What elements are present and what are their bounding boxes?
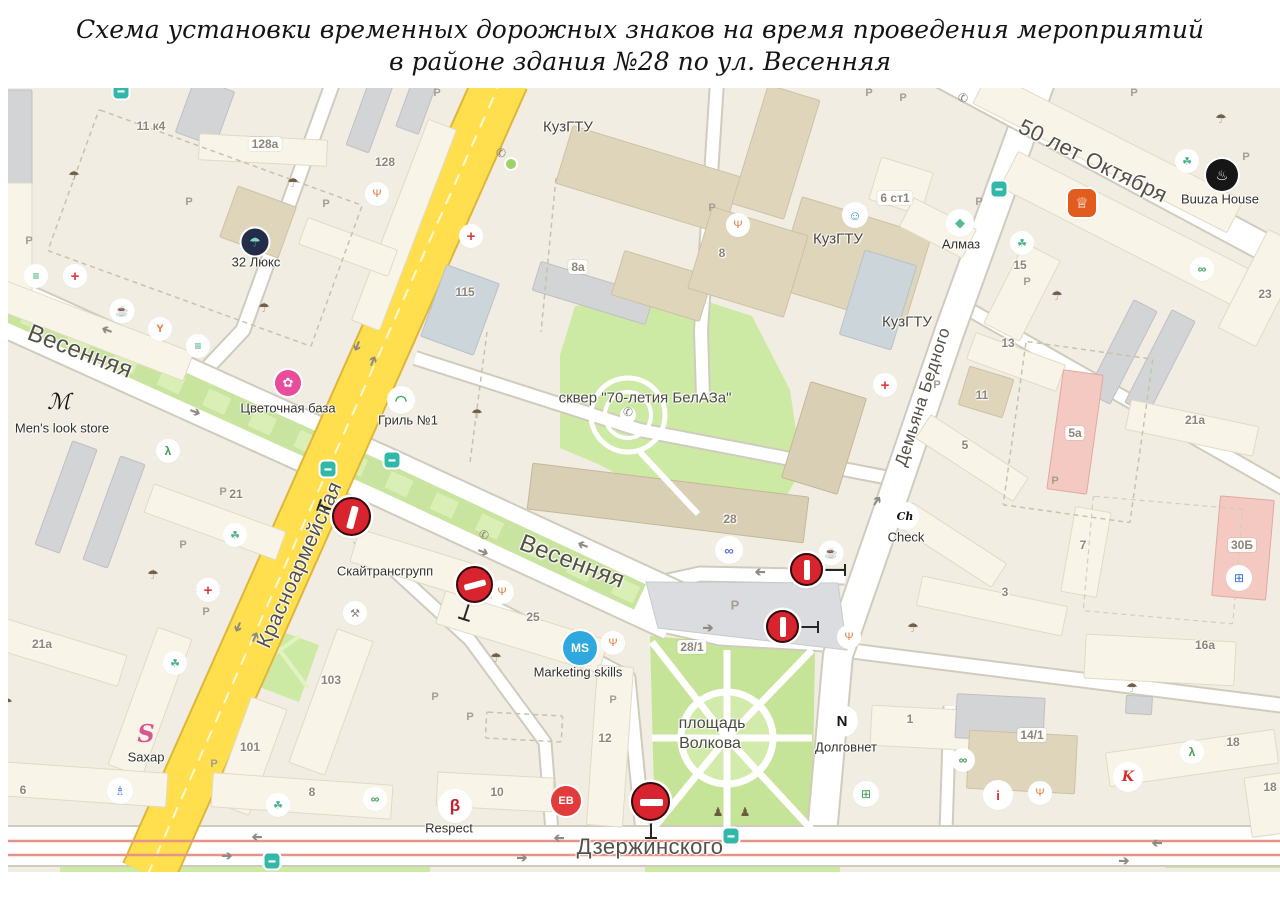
parking-letter: P xyxy=(708,202,715,214)
map-overlay: ВесенняяВесенняяКрасноармейскаяДемьяна Б… xyxy=(0,88,1280,872)
person-icon: λ xyxy=(1182,742,1202,762)
cart-icon: ⊞ xyxy=(855,783,877,805)
restaurant-icon: Ψ xyxy=(492,582,512,602)
place-label: Долговнет xyxy=(815,740,877,755)
sign-mount-tick xyxy=(645,837,657,839)
fitness-icon: ∞ xyxy=(953,750,973,770)
house-number: 21 xyxy=(229,487,242,501)
bus-stop-icon: ▬ xyxy=(992,182,1007,197)
place-label: сквер "70-летия БелАЗа" xyxy=(559,390,732,407)
services-icon: ☘ xyxy=(225,525,245,545)
road-direction-arrow: ➔ xyxy=(755,564,766,580)
parking-letter: P xyxy=(975,196,982,208)
tree-icon: ☂ xyxy=(471,406,483,422)
house-number: 28 xyxy=(723,512,736,526)
vase-icon: ♗ xyxy=(109,780,131,802)
services-icon: ☘ xyxy=(165,653,185,673)
house-number: 103 xyxy=(321,673,341,687)
parking-letter: P xyxy=(322,198,329,210)
tree-icon: ☂ xyxy=(1051,288,1063,304)
services-icon: ☘ xyxy=(268,795,288,815)
place-label: Волкова xyxy=(679,735,741,753)
place-label: Marketing skills xyxy=(534,665,623,680)
house-number: 3 xyxy=(1002,585,1009,599)
house-number: 7 xyxy=(1080,538,1087,552)
om-logo-icon: ℳ xyxy=(46,389,72,415)
fitness-icon: ∞ xyxy=(365,789,385,809)
road-direction-arrow: ➔ xyxy=(229,619,248,635)
house-number: 101 xyxy=(240,740,260,754)
k-logo-icon: K xyxy=(1115,764,1141,790)
street-name-label: Весенняя xyxy=(23,319,136,385)
road-direction-arrow: ➔ xyxy=(703,620,714,636)
house-number: 28/1 xyxy=(677,640,706,654)
flower-shop-icon: ✿ xyxy=(275,370,301,396)
no-entry-bar xyxy=(804,560,810,580)
parking-letter: P xyxy=(1051,475,1058,487)
bus-stop-icon: ▬ xyxy=(114,88,129,99)
road-direction-arrow: ➔ xyxy=(517,850,528,866)
house-number: 5 xyxy=(962,438,969,452)
parking-letter: P xyxy=(1130,88,1137,99)
tree-icon: ☂ xyxy=(1126,680,1138,696)
house-number: 18 xyxy=(1226,735,1239,749)
oval-logo-icon: i xyxy=(985,782,1011,808)
house-number: 12 xyxy=(598,731,611,745)
tree-icon: ☂ xyxy=(490,650,502,666)
lux-logo-icon: ☂ xyxy=(242,229,269,256)
house-number: 10 xyxy=(490,785,503,799)
road-direction-arrow: ➔ xyxy=(348,338,367,354)
scheme-title-line2: в районе здания №28 по ул. Весенняя xyxy=(0,46,1280,78)
house-number: 8 xyxy=(309,785,316,799)
diamond-icon: ◆ xyxy=(948,211,972,235)
restaurant-icon: Ψ xyxy=(728,215,748,235)
dolgovnet-logo-icon: N xyxy=(828,707,856,735)
place-label: Гриль №1 xyxy=(378,413,438,428)
house-number: 8а xyxy=(568,260,587,274)
eb-logo-icon: ЕВ xyxy=(551,786,581,816)
no-entry-sign xyxy=(631,782,671,822)
street-name-label: Демьяна Бедного xyxy=(891,325,955,469)
respect-logo-icon: β xyxy=(440,791,470,821)
house-number: 11 к4 xyxy=(137,119,166,133)
parking-letter: P xyxy=(865,88,872,99)
bus-stop-icon: ▬ xyxy=(321,462,336,477)
grill-logo-icon: ◠ xyxy=(389,388,413,412)
scheme-title-line1: Схема установки временных дорожных знако… xyxy=(0,14,1280,46)
tree-icon: ☂ xyxy=(907,620,919,636)
house-number: 25 xyxy=(526,610,539,624)
ms-logo-icon: MS xyxy=(563,631,597,665)
camera-icon: ✆ xyxy=(621,405,635,419)
parking-letter: P xyxy=(202,606,209,618)
statue-icon: ♟ xyxy=(738,805,752,819)
pharmacy-icon: + xyxy=(875,375,895,395)
road-direction-arrow: ➔ xyxy=(475,543,491,562)
parking-letter: P xyxy=(431,691,438,703)
statue-icon: ♟ xyxy=(711,805,725,819)
no-entry-bar xyxy=(640,799,663,806)
person-icon: λ xyxy=(158,441,178,461)
sign-mount-tick xyxy=(844,564,846,576)
road-direction-arrow: ➔ xyxy=(187,403,203,422)
parking-letter: P xyxy=(1242,151,1249,163)
restaurant-icon: Ψ xyxy=(603,633,623,653)
scheme-title: Схема установки временных дорожных знако… xyxy=(0,14,1280,78)
road-direction-arrow: ➔ xyxy=(252,829,263,845)
sign-mount-tick xyxy=(817,621,819,633)
place-label: 32 Люкс xyxy=(232,255,281,270)
green-dot xyxy=(506,159,516,169)
road-direction-arrow: ➔ xyxy=(1152,835,1163,851)
restaurant-icon: Ψ xyxy=(839,627,859,647)
tree-icon: ☂ xyxy=(258,300,270,316)
pharmacy-icon: + xyxy=(198,580,218,600)
house-number: 21а xyxy=(32,637,52,651)
road-direction-arrow: ➔ xyxy=(99,321,115,340)
house-number: 23 xyxy=(1258,287,1271,301)
house-number: 14/1 xyxy=(1017,728,1046,742)
parking-letter: P xyxy=(466,711,473,723)
cart-icon: ⊞ xyxy=(1228,567,1250,589)
parking-letter: P xyxy=(25,235,32,247)
saxap-logo-icon: S xyxy=(133,720,159,746)
restaurant-icon: Ψ xyxy=(1030,783,1050,803)
crown-icon: ♕ xyxy=(1068,189,1096,217)
map-canvas: ВесенняяВесенняяКрасноармейскаяДемьяна Б… xyxy=(0,88,1280,872)
parking-letter: P xyxy=(899,92,906,104)
place-label: КузГТУ xyxy=(543,119,593,136)
house-number: 11 xyxy=(976,388,989,402)
services-icon: ☘ xyxy=(1012,233,1032,253)
workshop-icon: ⚒ xyxy=(345,603,365,623)
parking-letter: P xyxy=(179,539,186,551)
cafe-icon: ☕ xyxy=(112,301,133,322)
house-number: 128 xyxy=(375,155,395,169)
house-number: 13 xyxy=(1001,336,1014,350)
no-entry-sign xyxy=(456,566,494,604)
bus-stop-icon: ▬ xyxy=(385,453,400,468)
no-entry-sign xyxy=(766,610,800,644)
no-entry-bar xyxy=(780,617,786,637)
no-entry-sign xyxy=(790,553,824,587)
parking-letter: P xyxy=(210,758,217,770)
tree-icon: ☂ xyxy=(287,175,299,191)
theater-icon: ☺ xyxy=(844,204,866,226)
parking-letter: P xyxy=(609,694,616,706)
house-number: 30Б xyxy=(1228,538,1256,552)
tree-icon: ☂ xyxy=(1215,111,1227,127)
camera-icon: ✆ xyxy=(956,91,970,105)
road-direction-arrow: ➔ xyxy=(222,848,233,864)
place-label: площадь xyxy=(679,715,746,733)
sign-mount-tick xyxy=(458,616,470,622)
place-label: Respect xyxy=(425,821,473,836)
fitness-icon: ∞ xyxy=(1192,259,1212,279)
bottom-margin xyxy=(0,872,1280,903)
place-label: Скайтрансгрупп xyxy=(337,564,433,579)
house-number: 21а xyxy=(1185,413,1205,427)
parking-letter: P xyxy=(185,196,192,208)
place-label: Check xyxy=(888,530,925,545)
house-number: 128а xyxy=(249,137,282,151)
atm-icon: ≡ xyxy=(188,336,208,356)
place-label: Buuza House xyxy=(1181,192,1259,207)
house-number: 1 xyxy=(907,712,914,726)
scheme-page: { "title": { "line1": "Схема установки в… xyxy=(0,0,1280,903)
parking-letter: P xyxy=(219,486,226,498)
bar-icon: Y xyxy=(150,319,170,339)
parking-letter: P xyxy=(933,379,940,391)
house-number: 5а xyxy=(1065,426,1084,440)
tree-icon: ☂ xyxy=(147,567,159,583)
place-label: Saxap xyxy=(128,750,165,765)
gym-icon: ∞ xyxy=(717,538,741,562)
house-number: 16а xyxy=(1195,638,1215,652)
bus-stop-icon: ▬ xyxy=(265,854,280,869)
house-number: 15 xyxy=(1013,258,1026,272)
parking-letter: P xyxy=(433,88,440,99)
parking-letter: P xyxy=(731,598,740,613)
buuza-logo-icon: ♨ xyxy=(1206,159,1238,191)
no-entry-sign xyxy=(332,497,372,537)
camera-icon: ✆ xyxy=(477,528,491,542)
pharmacy-icon: + xyxy=(461,226,481,246)
services-icon: ☘ xyxy=(1177,151,1197,171)
parking-letter: P xyxy=(1023,276,1030,288)
street-name-label: Весенняя xyxy=(515,529,628,595)
place-label: Men's look store xyxy=(15,421,109,436)
house-number: 8 xyxy=(719,246,726,260)
road-direction-arrow: ➔ xyxy=(554,830,565,846)
camera-icon: ✆ xyxy=(494,146,508,160)
house-number: 115 xyxy=(455,285,474,299)
place-label: Алмаз xyxy=(942,237,980,252)
road-direction-arrow: ➔ xyxy=(1119,853,1130,869)
bus-stop-icon: ▬ xyxy=(724,829,739,844)
house-number: 18 xyxy=(1263,780,1276,794)
atm-icon: ≡ xyxy=(26,266,46,286)
road-direction-arrow: ➔ xyxy=(575,536,591,555)
pharmacy-icon: + xyxy=(65,266,85,286)
tree-icon: ☂ xyxy=(68,168,80,184)
restaurant-icon: Ψ xyxy=(367,184,387,204)
place-label: Цветочная база xyxy=(240,401,335,416)
house-number: 6 ст1 xyxy=(877,191,912,205)
house-number: 6 xyxy=(20,783,27,797)
road-direction-arrow: ➔ xyxy=(867,492,886,510)
place-label: КузГТУ xyxy=(813,231,863,248)
road-direction-arrow: ➔ xyxy=(364,353,383,369)
left-margin xyxy=(0,88,8,872)
check-logo-icon: Ch xyxy=(893,504,917,528)
place-label: КузГТУ xyxy=(882,314,932,331)
